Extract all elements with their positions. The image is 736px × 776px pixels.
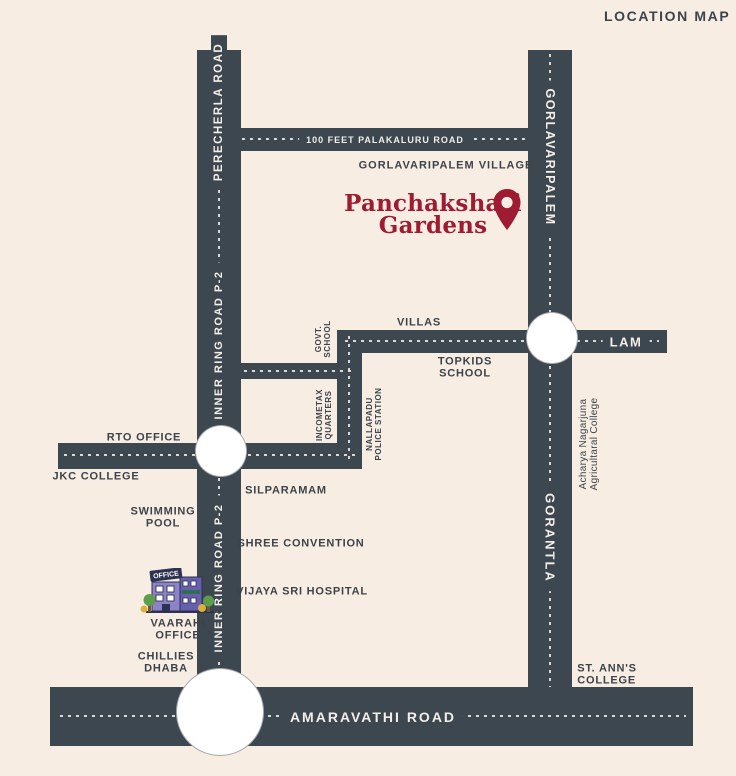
roundabout-rto-junction <box>195 425 247 477</box>
place-swimming-pool: SWIMMING POOL <box>130 507 195 530</box>
road-label-amaravathi: AMARAVATHI ROAD <box>283 708 463 726</box>
place-vaarahi-line1: VAARAHI <box>151 619 206 631</box>
place-st-anns-college: ST. ANN'S COLLEGE <box>577 664 637 687</box>
place-vijaya-sri-hospital: VIJAYA SRI HOSPITAL <box>236 586 368 598</box>
road-label-palakaluru: 100 FEET PALAKALURU ROAD <box>299 134 471 146</box>
place-topkids-school: TOPKIDS SCHOOL <box>438 357 492 380</box>
place-acharya-line2: Agricultaral College <box>589 398 600 491</box>
place-jkc-college: JKC COLLEGE <box>52 471 139 483</box>
centerline-short-link <box>244 370 356 372</box>
place-st-anns-line2: COLLEGE <box>577 675 637 687</box>
place-st-anns-line1: ST. ANN'S <box>577 664 637 676</box>
place-silparamam: SILPARAMAM <box>245 485 327 497</box>
place-govt-school-line2: SCHOOL <box>323 320 332 357</box>
road-label-gorantla: GORANTLA <box>541 485 560 591</box>
place-incometax-quarters: INCOMETAX QUARTERS <box>315 389 333 441</box>
place-rto-office: RTO OFFICE <box>107 432 181 444</box>
place-topkids-line2: SCHOOL <box>438 368 492 380</box>
road-label-perecherla: PERECHERLA ROAD <box>211 35 227 189</box>
place-nallapadu-line1: NALLAPADU <box>365 388 374 461</box>
office-building-icon: OFFICE <box>140 568 220 616</box>
road-label-gorlavaripalem: GORLAVARIPALEM <box>541 81 559 234</box>
place-govt-school: GOVT. SCHOOL <box>314 320 332 357</box>
place-swimming-line1: SWIMMING <box>130 507 195 519</box>
place-vaarahi-line2: OFFICE <box>151 630 206 642</box>
place-vaarahi-office: VAARAHI OFFICE <box>151 619 206 642</box>
centerline-connector <box>348 336 350 464</box>
road-label-inner-ring-upper: INNER RING ROAD P-2 <box>211 263 227 428</box>
location-map: PERECHERLA ROAD INNER RING ROAD P-2 INNE… <box>0 0 736 776</box>
place-govt-school-line1: GOVT. <box>314 320 323 357</box>
roundabout-amaravathi-junction <box>176 668 264 756</box>
place-nallapadu-line2: POLICE STATION <box>374 388 383 461</box>
place-villas: VILLAS <box>397 317 441 329</box>
place-chillies-line1: CHILLIES <box>138 652 195 664</box>
place-nallapadu-police-station: NALLAPADU POLICE STATION <box>365 388 383 461</box>
place-gorlavaripalem-village: GORLAVARIPALEM VILLAGE <box>359 160 534 172</box>
page-title: LOCATION MAP <box>604 8 730 24</box>
place-swimming-line2: POOL <box>130 518 195 530</box>
place-chillies-dhaba: CHILLIES DHABA <box>138 652 195 675</box>
place-acharya-line1: Acharya Nagarjuna <box>578 398 589 491</box>
place-incometax-line2: QUARTERS <box>324 389 333 441</box>
place-shree-convention: SHREE CONVENTION <box>237 538 364 550</box>
place-acharya-nagarjuna-college: Acharya Nagarjuna Agricultaral College <box>578 398 600 491</box>
place-topkids-line1: TOPKIDS <box>438 357 492 369</box>
place-incometax-line1: INCOMETAX <box>315 389 324 441</box>
roundabout-lam-junction <box>526 312 578 364</box>
road-label-lam: LAM <box>603 334 650 351</box>
map-pin-icon <box>492 188 522 232</box>
place-chillies-line2: DHABA <box>138 663 195 675</box>
